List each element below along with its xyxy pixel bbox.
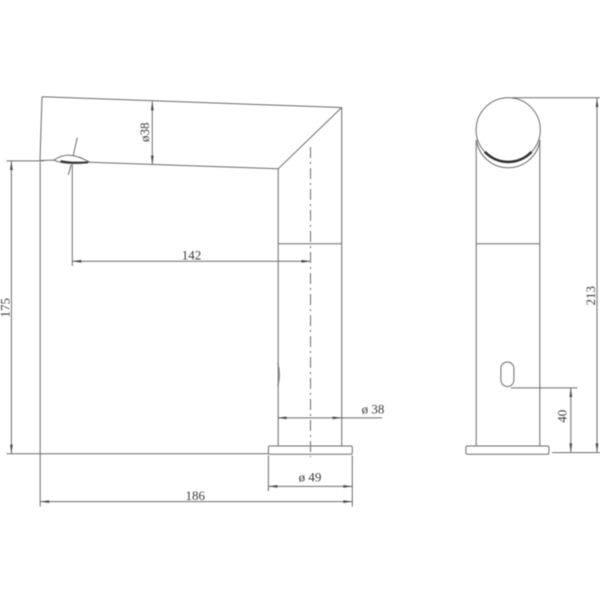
svg-text:142: 142 xyxy=(182,248,202,263)
svg-text:ø38: ø38 xyxy=(137,123,152,143)
svg-text:186: 186 xyxy=(185,488,205,503)
svg-text:ø 38: ø 38 xyxy=(362,402,385,417)
svg-text:40: 40 xyxy=(554,410,569,423)
svg-text:ø 49: ø 49 xyxy=(299,470,322,485)
svg-text:175: 175 xyxy=(0,298,13,318)
svg-text:213: 213 xyxy=(583,286,598,306)
